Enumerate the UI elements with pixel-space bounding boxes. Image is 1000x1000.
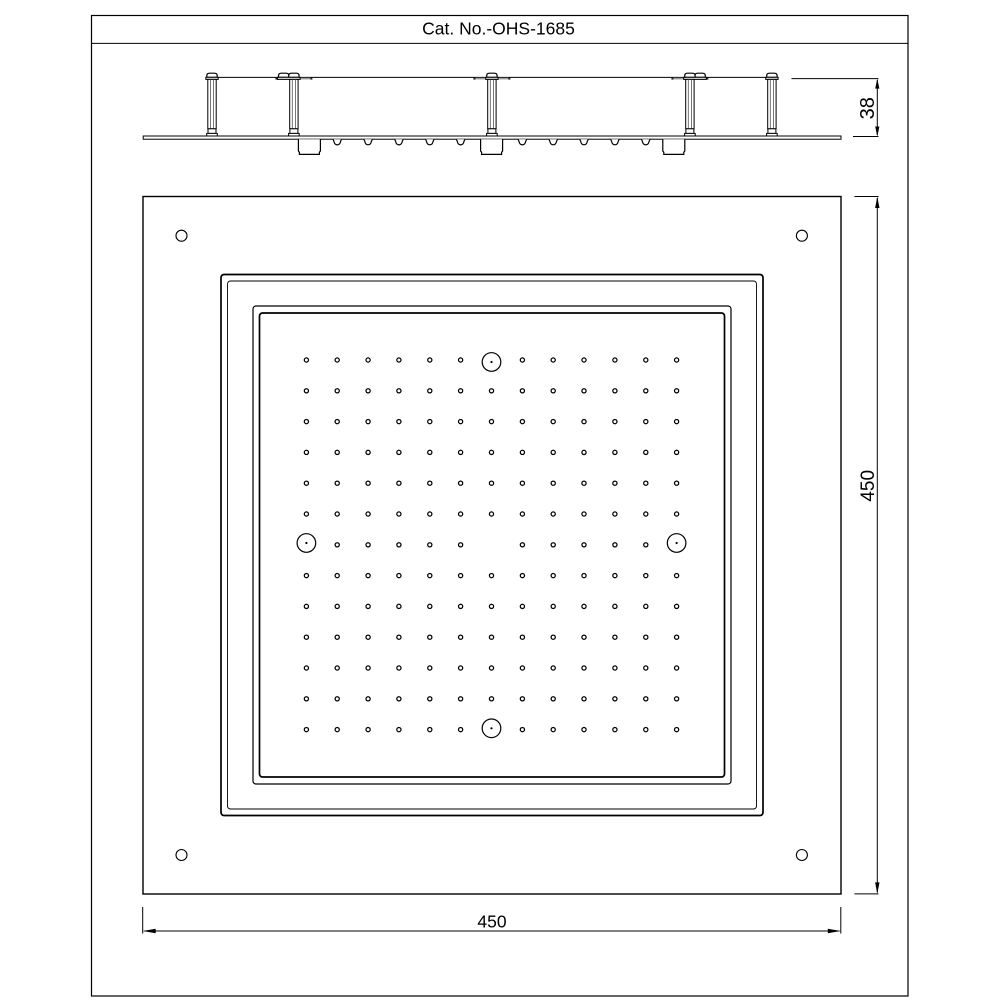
- svg-text:450: 450: [477, 912, 506, 932]
- svg-text:Cat. No.-OHS-1685: Cat. No.-OHS-1685: [422, 18, 575, 38]
- svg-text:38: 38: [857, 97, 879, 119]
- svg-text:450: 450: [858, 470, 879, 502]
